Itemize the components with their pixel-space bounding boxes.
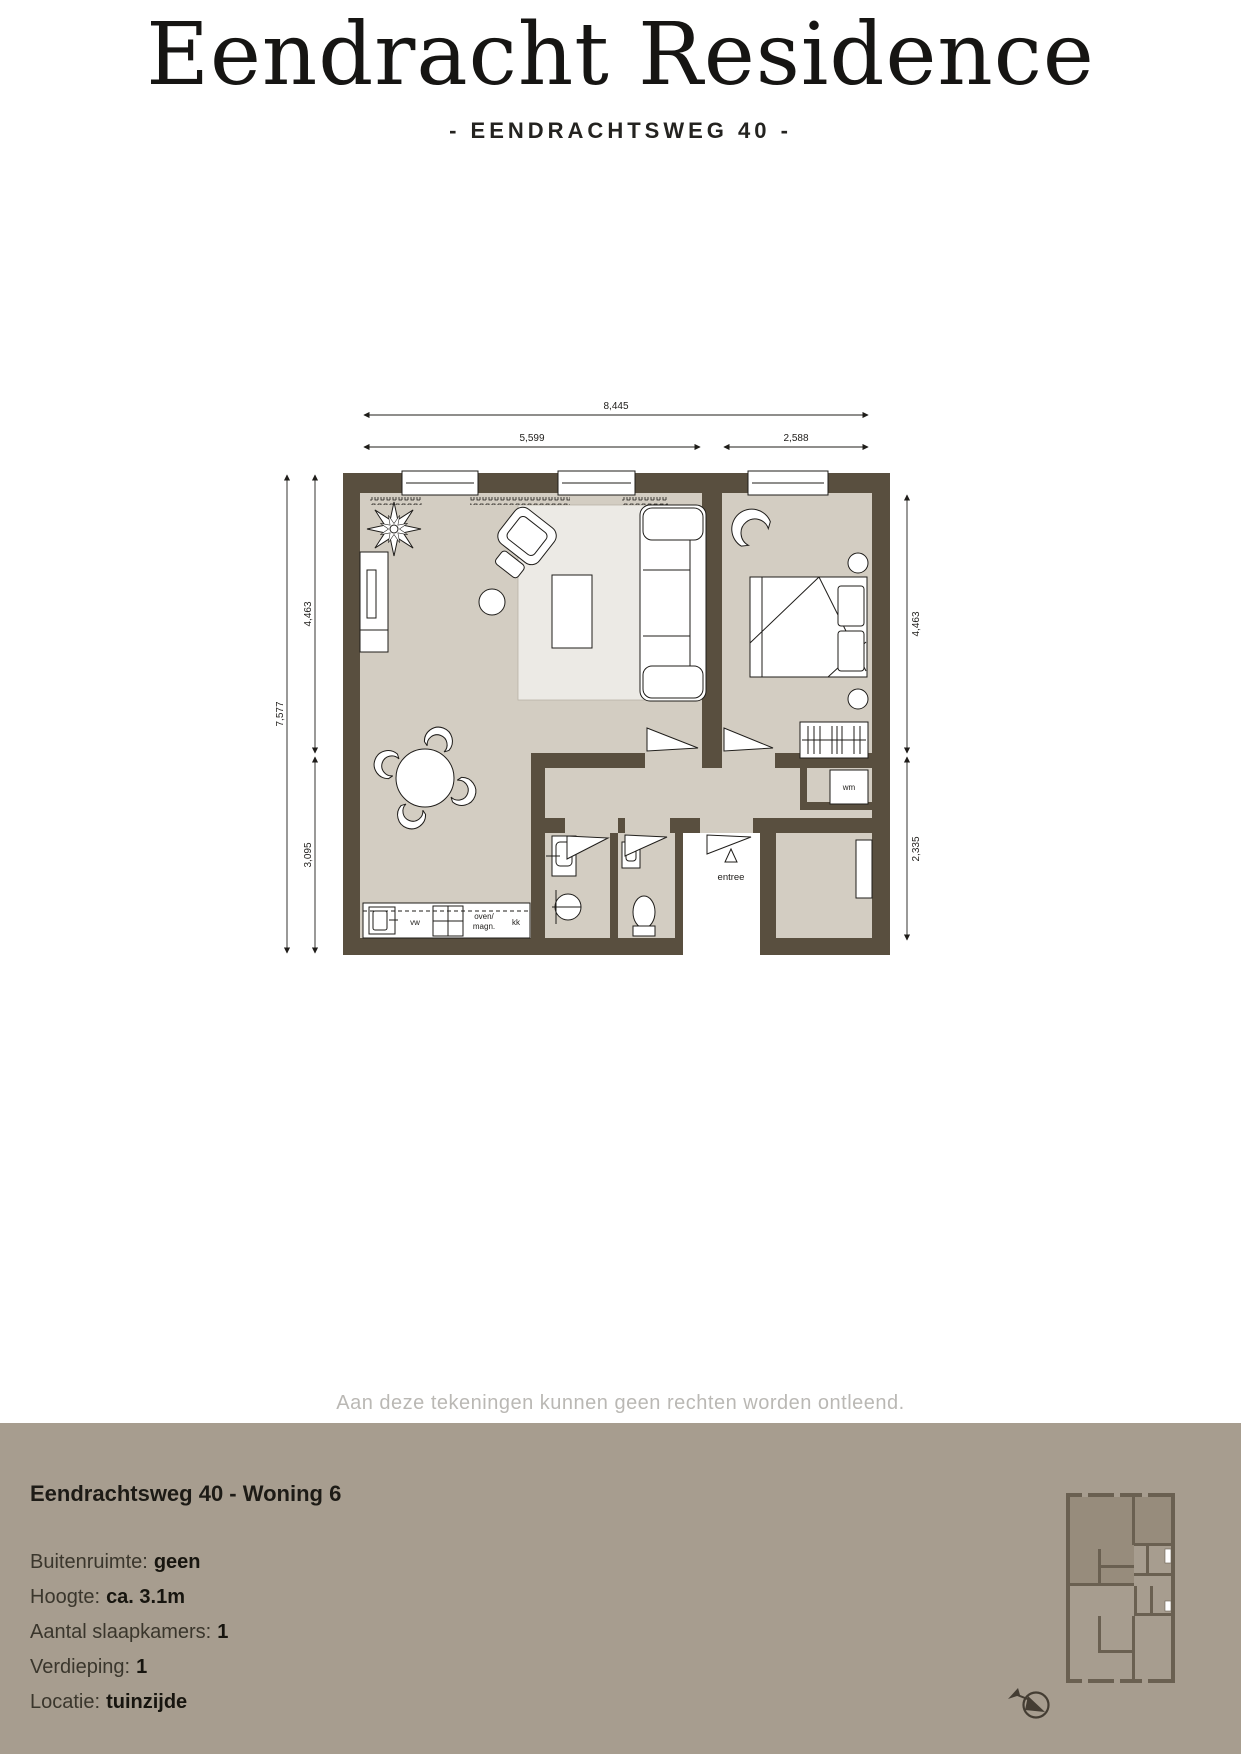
spec-value: tuinzijde bbox=[106, 1691, 187, 1713]
wm-label: wm bbox=[842, 783, 856, 792]
nightstand bbox=[848, 689, 868, 709]
brochure-page: Eendracht Residence - EENDRACHTSWEG 40 - bbox=[0, 0, 1241, 1754]
spec-row-hoogte: Hoogte:ca. 3.1m bbox=[30, 1586, 228, 1621]
dim-right-upper: 4,463 bbox=[911, 611, 922, 636]
dining-table bbox=[396, 749, 454, 807]
oven-label-line1: oven/ bbox=[474, 912, 494, 921]
wardrobe bbox=[800, 722, 868, 758]
spec-label: Verdieping: bbox=[30, 1656, 130, 1678]
dishwasher-label: vw bbox=[410, 918, 420, 927]
side-table bbox=[479, 589, 505, 615]
spec-label: Hoogte: bbox=[30, 1586, 100, 1608]
dim-bedroom-width: 2,588 bbox=[783, 433, 808, 444]
bed bbox=[750, 577, 867, 677]
radiator-strip bbox=[370, 497, 422, 505]
spec-label: Locatie: bbox=[30, 1691, 100, 1713]
toilet bbox=[633, 896, 655, 936]
sofa bbox=[640, 505, 706, 701]
washing-machine: wm bbox=[830, 770, 868, 804]
pillow bbox=[838, 631, 864, 671]
dim-living-width: 5,599 bbox=[519, 433, 544, 444]
window bbox=[748, 471, 828, 495]
spec-value: 1 bbox=[136, 1656, 147, 1678]
spec-row-locatie: Locatie:tuinzijde bbox=[30, 1691, 228, 1726]
pillow bbox=[838, 586, 864, 626]
spec-label: Buitenruimte: bbox=[30, 1551, 148, 1573]
kitchen-counter: vw oven/ magn. kk bbox=[363, 903, 530, 938]
minimap-shaft bbox=[1165, 1549, 1171, 1563]
unit-title: Eendrachtsweg 40 - Woning 6 bbox=[30, 1481, 341, 1507]
spec-row-verdieping: Verdieping:1 bbox=[30, 1656, 228, 1691]
oven-label-line2: magn. bbox=[473, 922, 495, 931]
dim-total-height: 7,577 bbox=[275, 701, 286, 726]
dim-left-upper: 4,463 bbox=[303, 601, 314, 626]
spec-row-slaapkamers: Aantal slaapkamers:1 bbox=[30, 1621, 228, 1656]
dim-total-width: 8,445 bbox=[603, 401, 628, 412]
windows bbox=[402, 471, 828, 495]
spec-value: ca. 3.1m bbox=[106, 1586, 185, 1608]
entree-corridor bbox=[683, 833, 760, 955]
footer-panel: Eendrachtsweg 40 - Woning 6 Buitenruimte… bbox=[0, 1423, 1241, 1754]
window bbox=[558, 471, 635, 495]
spec-label: Aantal slaapkamers: bbox=[30, 1621, 211, 1643]
page-title: Eendracht Residence bbox=[0, 10, 1241, 100]
dim-right-lower: 2,335 bbox=[911, 836, 922, 861]
radiator bbox=[856, 840, 872, 898]
disclaimer-text: Aan deze tekeningen kunnen geen rechten … bbox=[0, 1392, 1241, 1415]
floor-plan: vw oven/ magn. kk bbox=[270, 390, 970, 1010]
coffee-table bbox=[552, 575, 592, 648]
spec-row-buitenruimte: Buitenruimte:geen bbox=[30, 1551, 228, 1586]
radiators bbox=[370, 497, 668, 505]
fridge-label: kk bbox=[512, 918, 521, 927]
minimap bbox=[1058, 1487, 1183, 1697]
dim-left-lower: 3,095 bbox=[303, 842, 314, 867]
spec-list: Buitenruimte:geen Hoogte:ca. 3.1m Aantal… bbox=[30, 1551, 228, 1726]
cabinet bbox=[360, 552, 388, 652]
radiator-strip bbox=[622, 497, 668, 505]
entree-label: entree bbox=[718, 872, 745, 883]
window bbox=[402, 471, 478, 495]
spec-value: 1 bbox=[217, 1621, 228, 1643]
floor-plan-drawing: vw oven/ magn. kk bbox=[270, 390, 970, 1010]
spec-value: geen bbox=[154, 1551, 201, 1573]
plant bbox=[367, 502, 421, 556]
compass-icon bbox=[1000, 1681, 1060, 1726]
page-subtitle: - EENDRACHTSWEG 40 - bbox=[0, 118, 1241, 144]
radiator-strip bbox=[470, 497, 570, 505]
nightstand bbox=[848, 553, 868, 573]
minimap-shaft bbox=[1165, 1601, 1171, 1611]
